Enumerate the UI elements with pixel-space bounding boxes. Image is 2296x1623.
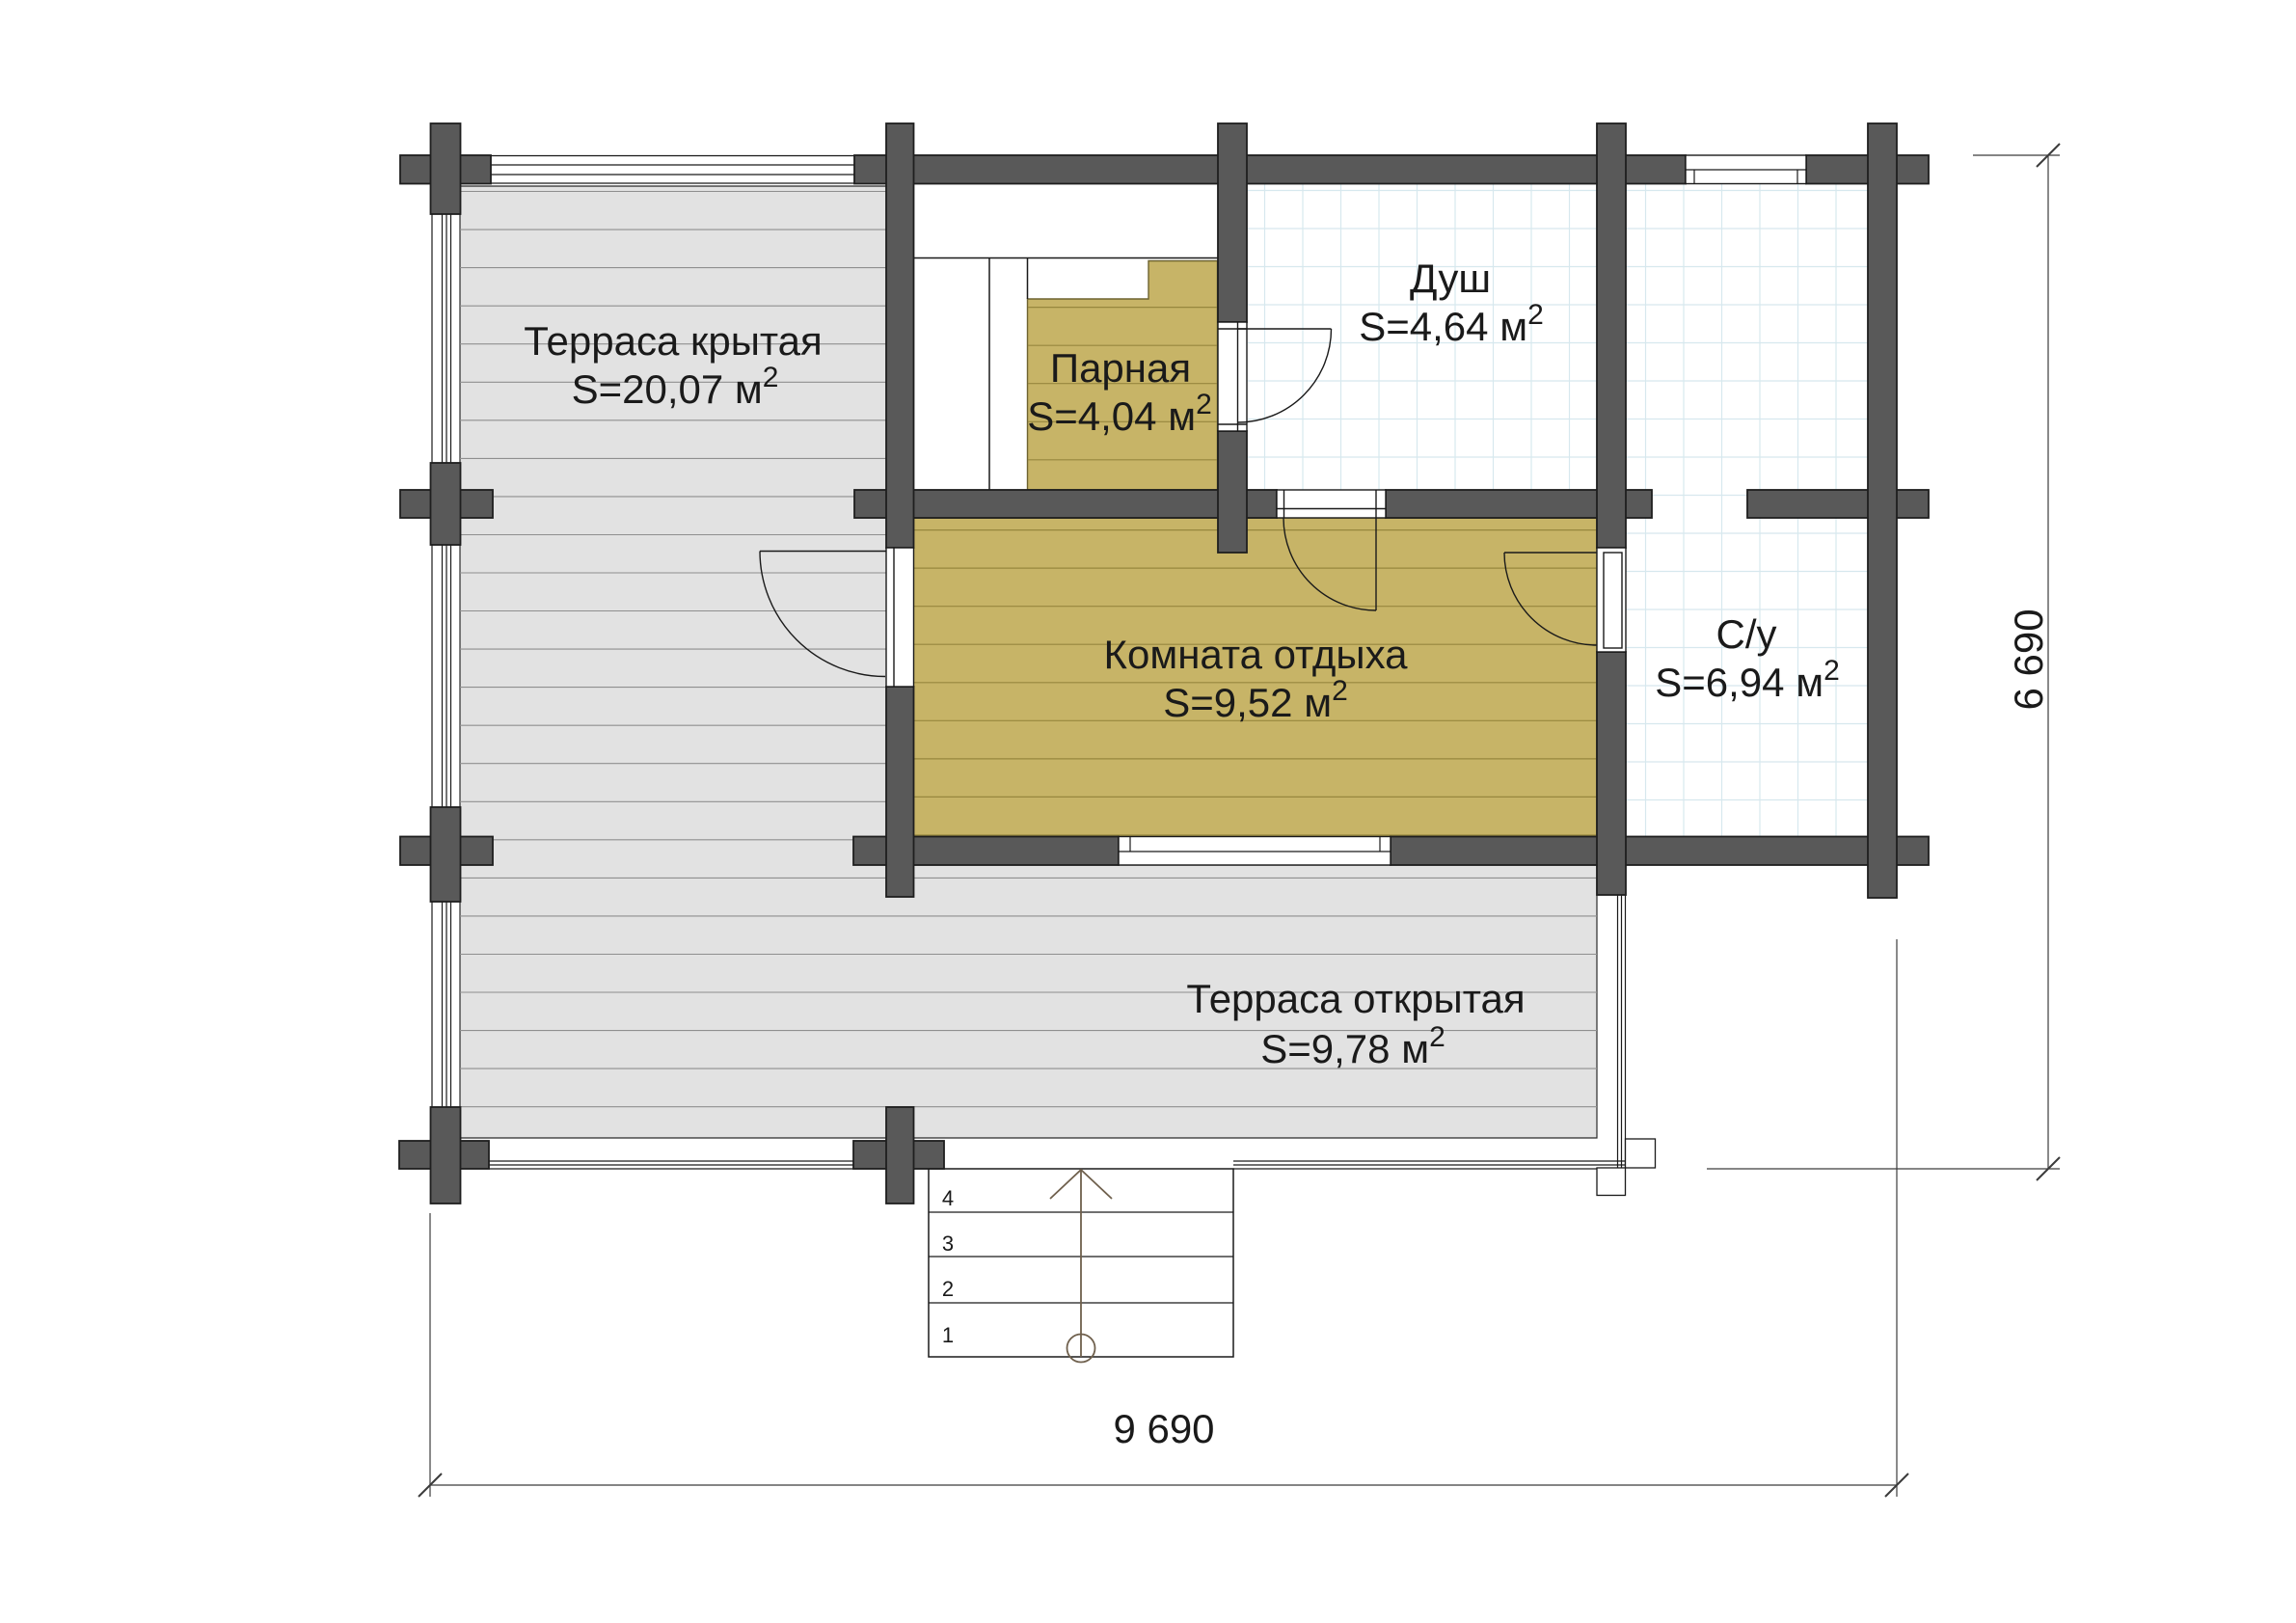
svg-text:S=4,04 м2: S=4,04 м2	[1027, 389, 1212, 439]
svg-text:Душ: Душ	[1410, 256, 1491, 301]
svg-text:S=20,07 м2: S=20,07 м2	[572, 362, 779, 412]
svg-text:Терраса крытая: Терраса крытая	[524, 318, 823, 364]
svg-text:Терраса открытая: Терраса открытая	[1186, 976, 1525, 1021]
svg-text:2: 2	[942, 1277, 954, 1301]
svg-text:S=4,64 м2: S=4,64 м2	[1359, 299, 1544, 349]
svg-text:Комната отдыха: Комната отдыха	[1104, 632, 1409, 677]
svg-text:4: 4	[942, 1186, 954, 1210]
svg-text:6 690: 6 690	[2006, 609, 2051, 710]
svg-text:9 690: 9 690	[1113, 1406, 1214, 1451]
svg-text:Парная: Парная	[1050, 345, 1191, 391]
svg-text:С/у: С/у	[1716, 611, 1777, 657]
svg-text:3: 3	[942, 1231, 954, 1256]
svg-text:S=9,78 м2: S=9,78 м2	[1260, 1021, 1445, 1071]
svg-text:1: 1	[942, 1323, 954, 1347]
svg-text:S=6,94 м2: S=6,94 м2	[1655, 655, 1840, 705]
svg-text:S=9,52 м2: S=9,52 м2	[1163, 675, 1348, 725]
